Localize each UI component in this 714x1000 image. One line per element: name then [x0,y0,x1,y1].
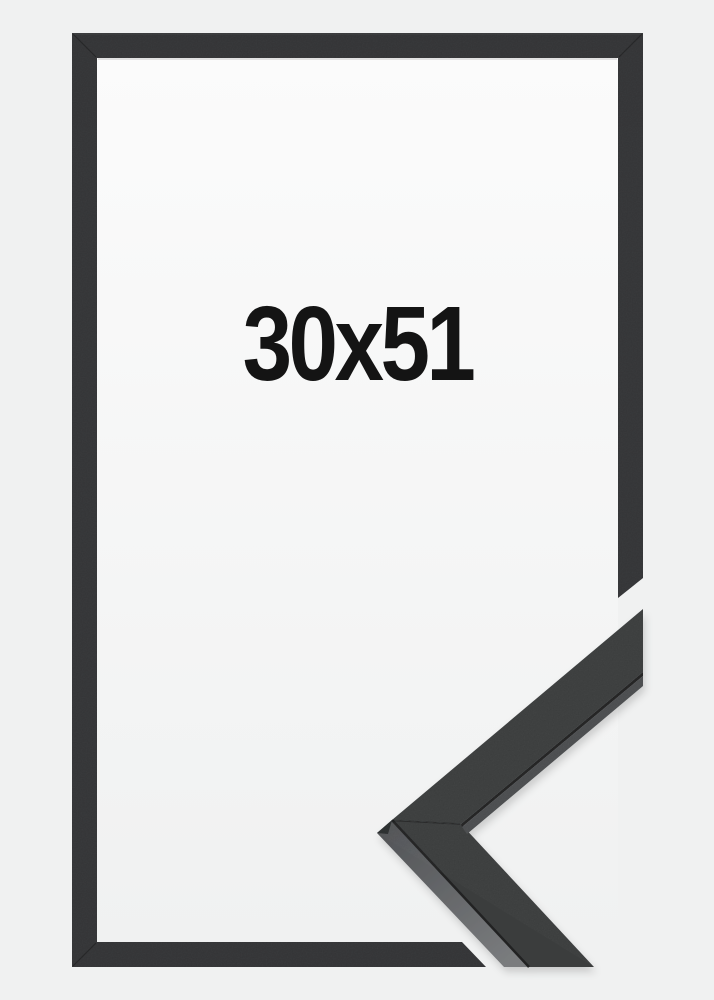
frame-graphic [0,0,714,1000]
frame-backing [97,58,618,942]
size-label: 30x51 [118,291,598,397]
product-image: 30x51 [0,0,714,1000]
